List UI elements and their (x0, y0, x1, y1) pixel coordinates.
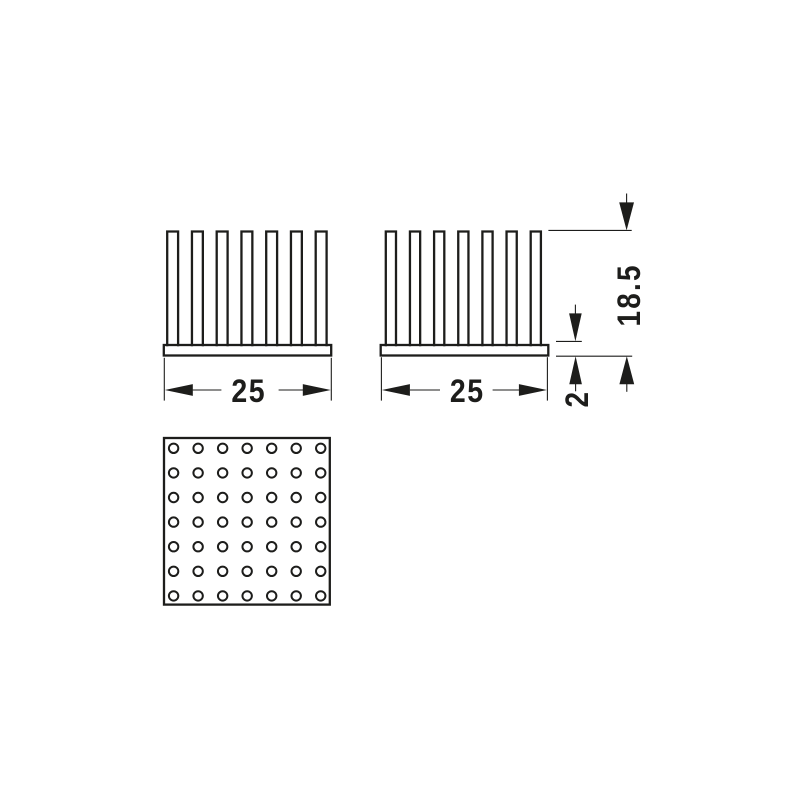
svg-text:18.5: 18.5 (612, 263, 647, 326)
svg-text:25: 25 (450, 374, 485, 409)
svg-text:25: 25 (231, 374, 266, 409)
svg-text:2: 2 (560, 392, 595, 407)
